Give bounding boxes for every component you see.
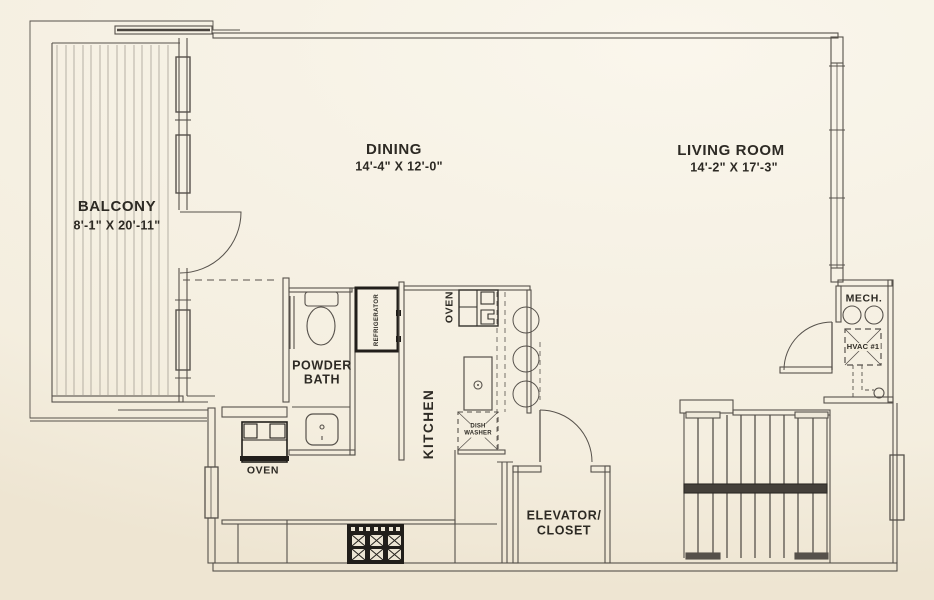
living-room-dims: 14'-2" X 17'-3" — [690, 161, 778, 174]
hvac-label: HVAC #1 — [846, 343, 881, 351]
living-window-wall — [829, 37, 845, 282]
bath-sink-icon — [292, 407, 350, 445]
balcony-window-wall — [175, 38, 191, 402]
closet-door — [540, 410, 592, 462]
top-left-wall — [115, 26, 212, 34]
balcony-label: BALCONY — [78, 199, 156, 215]
mech-label: MECH. — [846, 293, 883, 304]
entry-door — [784, 322, 832, 370]
elevator-closet-label-line2: CLOSET — [537, 524, 591, 537]
barstool-icons — [513, 307, 539, 407]
top-wall — [213, 33, 838, 38]
balcony-dims: 8'-1" X 20'-11" — [74, 219, 161, 232]
dining-dims: 14'-4" X 12'-0" — [355, 160, 443, 173]
dishwasher-label-line2: WASHER — [464, 431, 492, 438]
living-room-label: LIVING ROOM — [677, 143, 784, 159]
powder-bath-label-line1: POWDER — [292, 359, 352, 372]
floor-plan: BALCONY 8'-1" X 20'-11" DINING 14'-4" X … — [0, 0, 934, 600]
bottom-wall — [213, 563, 897, 571]
kitchen-sink-icon — [464, 357, 492, 410]
dishwasher-label-line1: DISH — [470, 424, 485, 431]
wall-oven-icon — [240, 422, 289, 462]
balcony-door — [180, 212, 241, 273]
kitchen-oven-icon — [459, 290, 498, 326]
range-icon — [347, 524, 404, 564]
refrigerator-label: REFRIGERATOR — [374, 294, 380, 346]
toilet-icon — [305, 292, 338, 345]
dining-label: DINING — [366, 142, 422, 158]
mech-fixtures — [843, 306, 884, 398]
floor-plan-linework — [0, 0, 934, 600]
wall-oven-label: OVEN — [247, 465, 279, 476]
kitchen-oven-label: OVEN — [444, 291, 455, 323]
powder-bath-label-line2: BATH — [304, 373, 340, 386]
staircase — [680, 400, 830, 563]
stair-landing — [684, 484, 827, 493]
kitchen-label: KITCHEN — [422, 389, 436, 460]
right-lower-wall — [890, 402, 904, 563]
elevator-closet-label-line1: ELEVATOR/ — [527, 509, 602, 522]
